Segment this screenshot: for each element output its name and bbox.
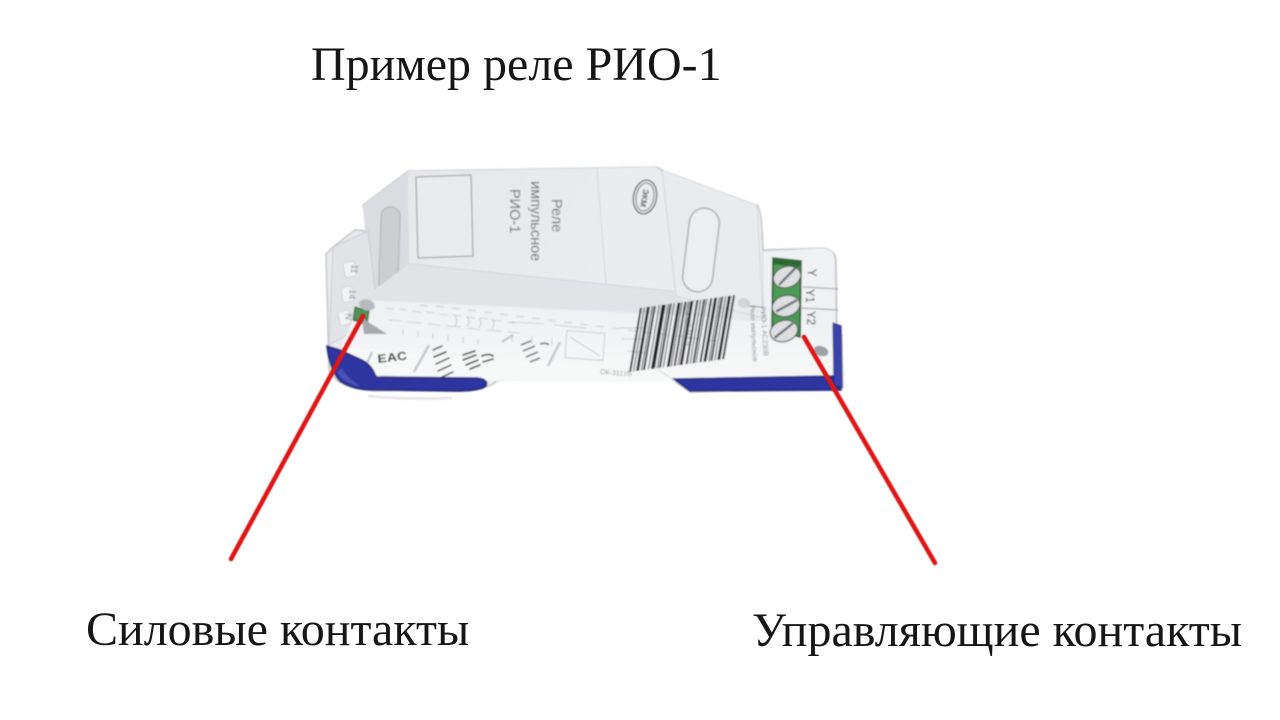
svg-text:14: 14: [347, 289, 358, 300]
svg-text:N: N: [343, 313, 354, 321]
svg-text:РИО-1: РИО-1: [506, 189, 522, 233]
svg-text:импульсное: импульсное: [527, 181, 543, 261]
svg-text:Y: Y: [805, 269, 817, 277]
svg-text:Y2: Y2: [804, 311, 816, 325]
svg-text:Y1: Y1: [803, 289, 815, 303]
svg-text:Реле: Реле: [548, 199, 564, 232]
svg-text:11: 11: [349, 264, 360, 274]
